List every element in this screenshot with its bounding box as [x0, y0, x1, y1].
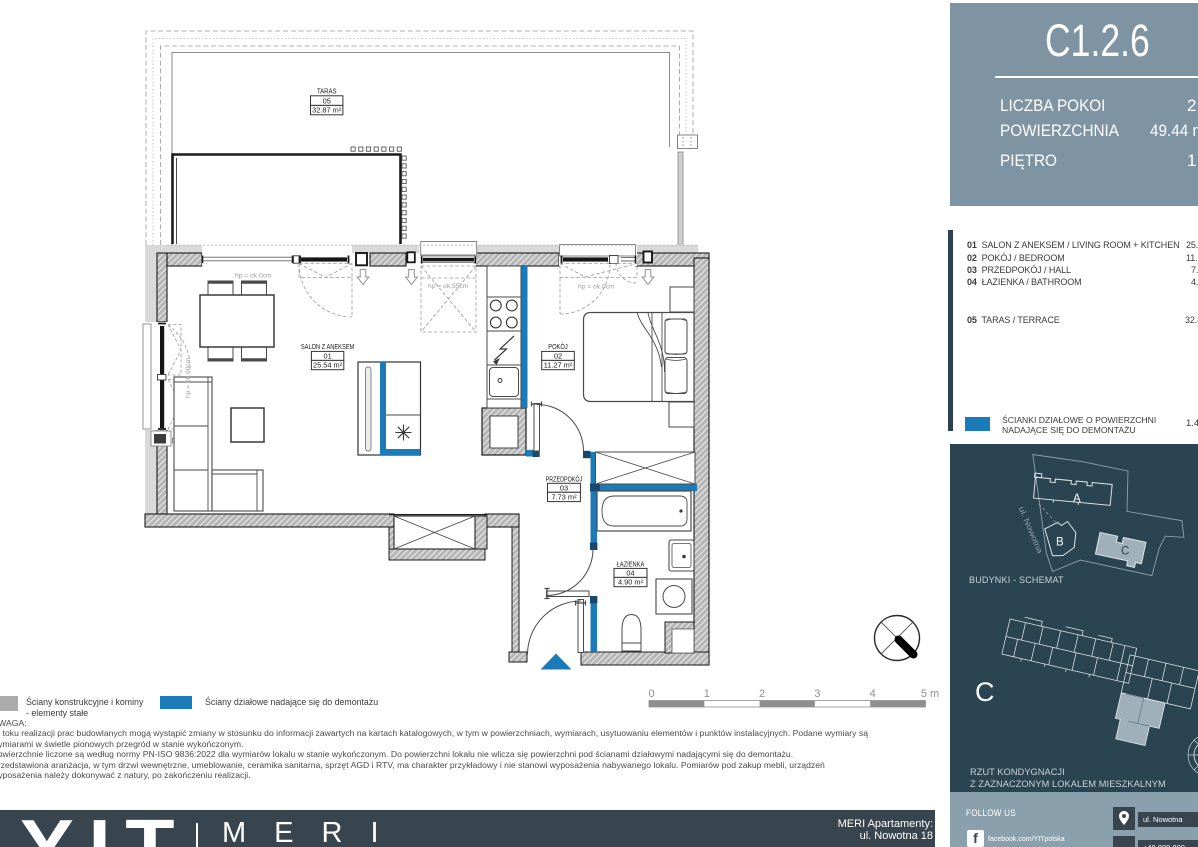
- svg-text:5 m: 5 m: [921, 688, 939, 700]
- svg-text:PRZEDPOKÓJ: PRZEDPOKÓJ: [546, 474, 583, 483]
- svg-text:05: 05: [323, 96, 331, 105]
- svg-text:0: 0: [648, 688, 654, 700]
- svg-text:25.54 m²: 25.54 m²: [313, 361, 343, 370]
- svg-text:hp = ok.0cm: hp = ok.0cm: [578, 284, 615, 291]
- svg-text:SALON Z ANEKSEM: SALON Z ANEKSEM: [301, 342, 354, 351]
- svg-text:TARAS: TARAS: [317, 87, 337, 96]
- svg-text:POKÓJ: POKÓJ: [548, 342, 568, 351]
- svg-text:03: 03: [560, 484, 568, 493]
- svg-text:3: 3: [814, 688, 820, 700]
- svg-text:2: 2: [759, 688, 765, 700]
- svg-text:02: 02: [554, 352, 562, 361]
- svg-text:hp = ok.55cm: hp = ok.55cm: [428, 283, 469, 290]
- svg-text:hp = ok.0cm: hp = ok.0cm: [235, 273, 272, 280]
- svg-text:B: B: [1056, 537, 1064, 549]
- svg-text:A: A: [1073, 493, 1081, 505]
- svg-text:4.90 m²: 4.90 m²: [618, 578, 644, 587]
- svg-text:ŁAZIENKA: ŁAZIENKA: [617, 560, 645, 569]
- svg-text:hp = ok.90cm: hp = ok.90cm: [185, 357, 192, 398]
- svg-text:1: 1: [704, 688, 710, 700]
- svg-text:C: C: [1121, 546, 1129, 558]
- svg-text:7.73 m²: 7.73 m²: [551, 493, 577, 502]
- svg-text:4: 4: [870, 688, 876, 700]
- svg-text:01: 01: [323, 352, 331, 361]
- svg-text:32.87 m²: 32.87 m²: [312, 106, 342, 115]
- svg-text:04: 04: [626, 569, 634, 578]
- svg-text:11.27 m²: 11.27 m²: [544, 361, 573, 370]
